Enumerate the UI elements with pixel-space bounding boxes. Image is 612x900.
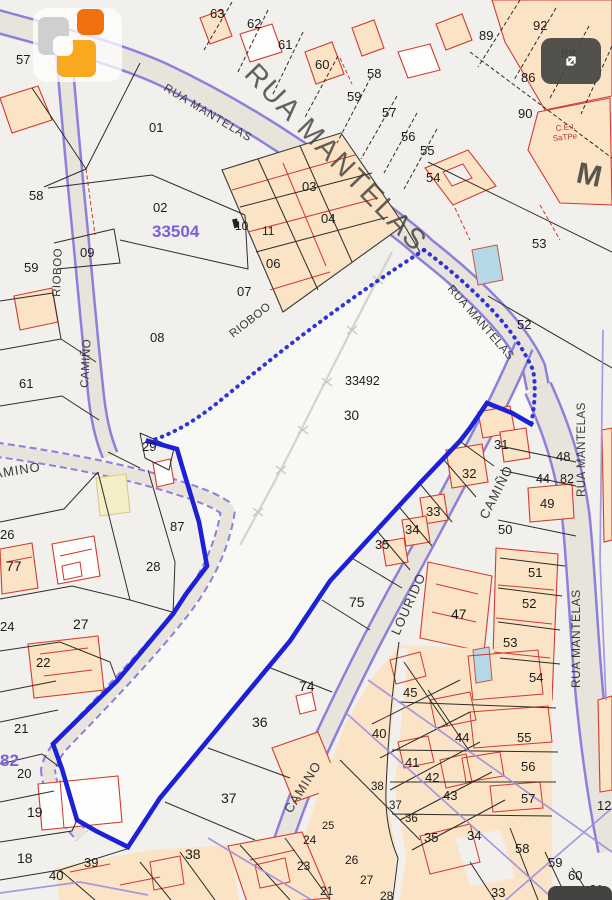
parcel-number-label: 57 xyxy=(16,52,30,67)
parcel-number-label: 24 xyxy=(303,833,317,847)
parcel-number-label: 33 xyxy=(426,504,440,519)
parcel-number-label: 58 xyxy=(29,188,43,203)
fullscreen-button[interactable] xyxy=(541,38,601,84)
parcel-number-label: 45 xyxy=(403,685,417,700)
parcel-number-label: 61 xyxy=(19,376,33,391)
parcel-number-label: 57 xyxy=(521,791,535,806)
bottom-right-control[interactable] xyxy=(548,886,612,900)
parcel-number-label: 27 xyxy=(73,616,89,632)
cadastral-map[interactable]: RUA MANTELASRUA MANTELASRUA MANTELASRUA … xyxy=(0,0,612,900)
parcel-number-label: 29 xyxy=(142,439,156,454)
parcel-number-label: 25 xyxy=(322,820,334,832)
parcel-number-label: 51 xyxy=(528,565,542,580)
parcel-number-label: 26 xyxy=(0,527,14,542)
parcel-number-label: 42 xyxy=(425,770,439,785)
parcel-number-label: 87 xyxy=(170,519,184,534)
parcel-number-label: 27 xyxy=(360,873,374,887)
parcel-number-label: 38 xyxy=(185,846,201,862)
parcel-number-label: 26 xyxy=(345,853,359,867)
parcel-number-label: 22 xyxy=(36,655,50,670)
parcel-number-label: 89 xyxy=(479,28,493,43)
parcel-number-label: 61 xyxy=(278,37,292,52)
logo-orange-square-icon xyxy=(77,9,104,35)
parcel-number-label: 77 xyxy=(6,558,22,574)
parcel-number-label: 23 xyxy=(297,859,311,873)
parcel-number-label: 36 xyxy=(405,813,418,825)
parcel-number-label: 34 xyxy=(467,828,481,843)
parcel-number-label: 44 xyxy=(455,730,469,745)
parcel-number-label: 92 xyxy=(533,18,547,33)
logo-notch xyxy=(53,36,73,56)
parcel-number-label: 60 xyxy=(568,868,582,883)
parcel-number-label: 40 xyxy=(49,868,63,883)
parcel-number-label: 07 xyxy=(237,284,251,299)
parcel-number-label: 03 xyxy=(302,179,316,194)
parcel-number-label: 49 xyxy=(540,496,554,511)
parcel-number-label: 47 xyxy=(451,606,467,622)
parcel-number-label: 53 xyxy=(503,635,517,650)
parcel-number-label: 01 xyxy=(149,120,163,135)
parcel-number-label: 56 xyxy=(401,129,415,144)
parcel-number-label: 62 xyxy=(247,16,261,31)
parcel-number-label: 90 xyxy=(518,106,532,121)
parcel-number-label: 02 xyxy=(153,200,167,215)
parcel-number-label: 59 xyxy=(24,260,38,275)
parcel-number-label: 41 xyxy=(405,755,419,770)
parcel-number-label: 06 xyxy=(266,256,280,271)
parcel-number-label: 33 xyxy=(491,885,505,900)
misc-label-layer: C.E.I.SaTPe xyxy=(552,122,578,143)
parcel-number-label: 10 xyxy=(235,219,249,233)
parcel-number-label: 35 xyxy=(375,537,389,552)
parcel-number-label: 28 xyxy=(380,889,394,900)
parcel-number-label: 37 xyxy=(389,800,402,812)
parcel-number-label: 18 xyxy=(17,850,33,866)
parcel-number-label: 20 xyxy=(17,766,31,781)
parcel-number-label: 21 xyxy=(14,721,28,736)
parcel-number-label: 54 xyxy=(529,670,543,685)
parcel-number-label: 30 xyxy=(344,408,359,423)
parcel-number-label: 48 xyxy=(556,449,570,464)
parcel-number-label: 55 xyxy=(420,143,434,158)
street-name-label: CAMIÑO xyxy=(78,339,94,389)
parcel-number-label: 82 xyxy=(560,472,574,486)
street-name-label: RIOBOO xyxy=(51,248,65,297)
expand-arrows-icon xyxy=(557,47,585,75)
parcel-number-label: 52 xyxy=(517,317,531,332)
parcel-number-label: 24 xyxy=(0,619,14,634)
parcel-number-label: 34 xyxy=(405,522,419,537)
street-name-label: RUA MANTELAS xyxy=(576,402,588,497)
parcel-number-label: 11 xyxy=(262,224,275,238)
parcel-number-label: 33504 xyxy=(152,222,200,241)
parcel-number-label: 63 xyxy=(210,6,224,21)
parcel-number-label: 56 xyxy=(521,759,535,774)
parcel-number-label: 33492 xyxy=(345,374,380,388)
parcel-number-label: 37 xyxy=(221,790,237,806)
parcel-number-label: 31 xyxy=(494,437,508,452)
parcel-number-label: 54 xyxy=(426,170,440,185)
parcel-number-label: 58 xyxy=(367,66,381,81)
parcel-number-label: 74 xyxy=(299,678,315,694)
parcel-number-label: 58 xyxy=(515,841,529,856)
parcel-number-label: 75 xyxy=(349,594,365,610)
parcel-number-label: 36 xyxy=(252,714,268,730)
parcel-number-label: 53 xyxy=(532,236,546,251)
parcel-number-label: 38 xyxy=(371,781,384,793)
parcel-number-label: 60 xyxy=(315,57,329,72)
street-name-label: RUA MANTELAS xyxy=(569,589,583,688)
parcel-number-label: 12 xyxy=(597,798,611,813)
parcel-number-label: 21 xyxy=(320,884,334,898)
parcel-number-label: 59 xyxy=(347,89,361,104)
parcel-number-label: 09 xyxy=(80,245,94,260)
parcel-number-label: 52 xyxy=(522,596,536,611)
parcel-number-label: 43 xyxy=(443,788,457,803)
parcel-number-label: 59 xyxy=(548,855,562,870)
parcel-number-label: 19 xyxy=(27,804,43,820)
parcel-number-label: 55 xyxy=(517,730,531,745)
parcel-number-label: 57 xyxy=(382,105,396,120)
parcel-number-label: 39 xyxy=(84,855,98,870)
map-viewport[interactable]: RUA MANTELASRUA MANTELASRUA MANTELASRUA … xyxy=(0,0,612,900)
parcel-number-label: 35 xyxy=(424,830,438,845)
parcel-number-label: 32 xyxy=(462,466,476,481)
brand-squares-logo[interactable] xyxy=(33,8,122,82)
parcel-number-label: 04 xyxy=(321,211,335,226)
parcel-number-label: 28 xyxy=(146,559,160,574)
parcel-number-label: 50 xyxy=(498,522,512,537)
parcel-number-label: 40 xyxy=(372,726,386,741)
parcel-number-label: 08 xyxy=(150,330,164,345)
parcel-number-label: 44 xyxy=(536,472,550,486)
parcel-number-label: 86 xyxy=(521,70,535,85)
